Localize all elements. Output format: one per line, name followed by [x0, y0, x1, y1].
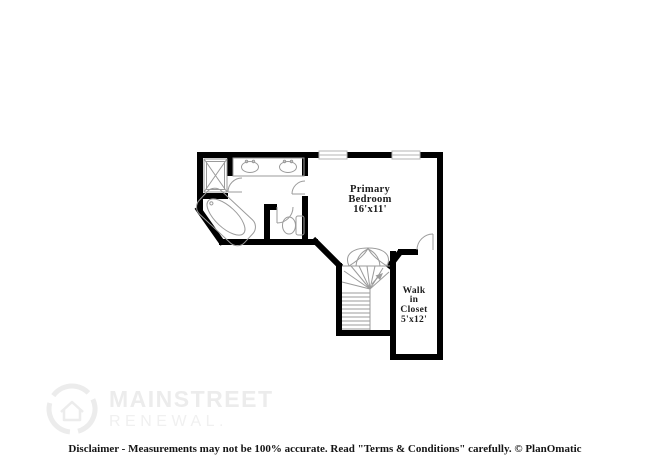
primary-bedroom-dimensions: 16'x11': [353, 204, 387, 215]
shower-icon: [204, 159, 227, 192]
mainstreet-logo-icon: [44, 381, 100, 437]
disclaimer-text: Disclaimer - Measurements may not be 100…: [0, 443, 650, 455]
vanity-sinks-icon: [233, 158, 304, 176]
double-door-icon: [342, 248, 390, 266]
toilet-icon: [283, 216, 305, 235]
logo-brand-text: MAINSTREET: [109, 388, 274, 411]
stairs-icon: [342, 266, 389, 330]
door-arc-icon: [292, 181, 305, 194]
walls-group: [197, 152, 443, 360]
walk-in-closet-label: Closet: [400, 305, 428, 315]
logo-sub-text: RENEWAL.: [109, 414, 274, 430]
door-arc-icon: [417, 234, 433, 250]
door-arc-icon: [277, 207, 293, 223]
walk-in-closet-label: in: [410, 295, 419, 305]
door-arc-icon: [228, 178, 242, 192]
mainstreet-logo: MAINSTREET RENEWAL.: [44, 381, 274, 437]
walk-in-closet-dimensions: 5'x12': [401, 315, 427, 325]
floorplan-page: Primary Bedroom 16'x11' Walk in Closet 5…: [0, 0, 650, 473]
